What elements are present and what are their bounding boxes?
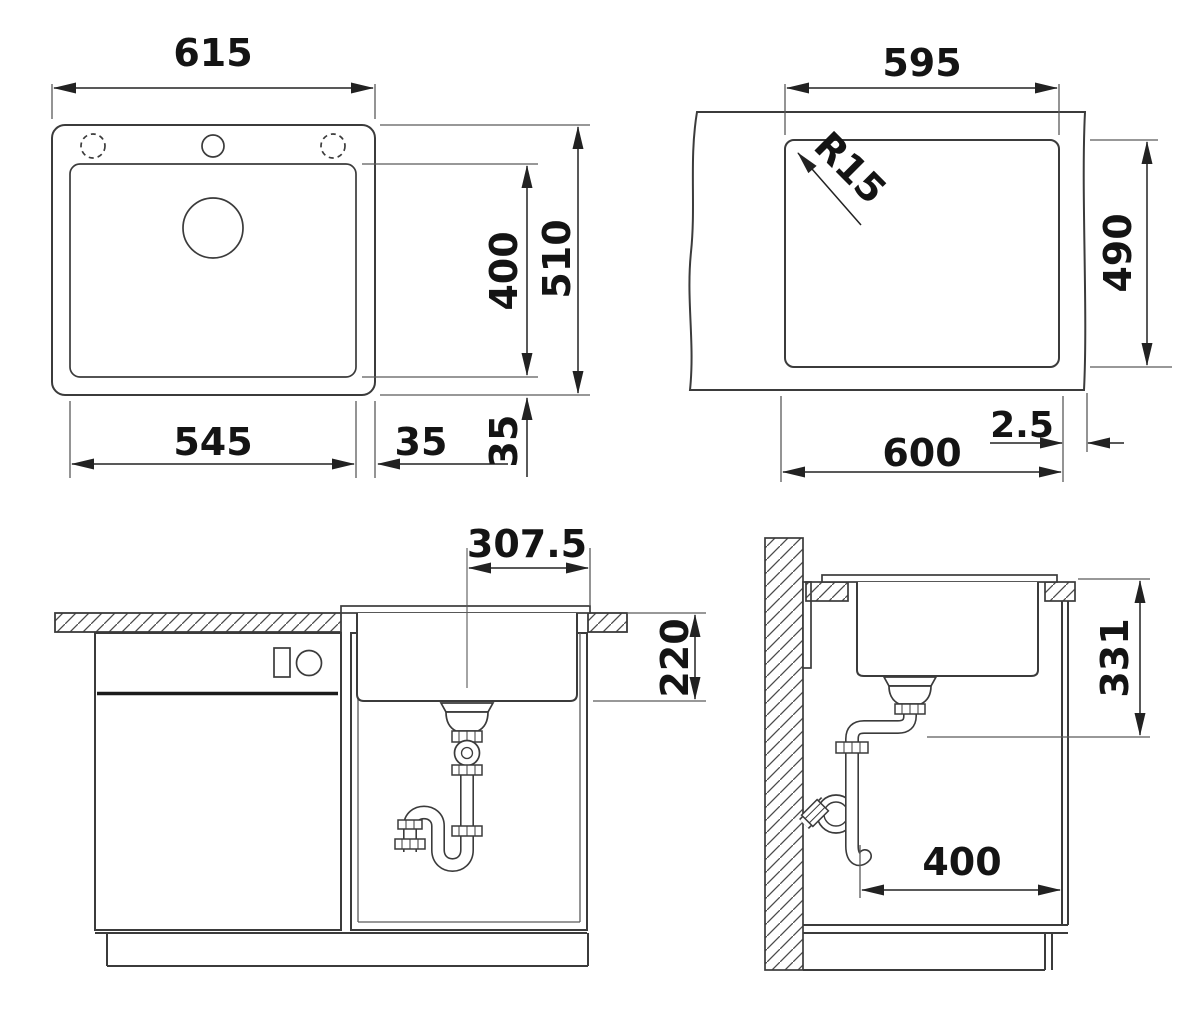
dim-edge-distance: 2.5 bbox=[990, 405, 1054, 446]
worktop-cutout-view: R15 595 490 600 2.5 bbox=[689, 41, 1172, 482]
trap-loop-inner bbox=[824, 802, 848, 826]
dim-overall-width: 615 bbox=[173, 31, 252, 75]
dim-bowl-inner-depth: 220 bbox=[653, 618, 697, 697]
tap-hole-center bbox=[202, 135, 224, 157]
sink-rim-flange-side bbox=[822, 575, 1057, 582]
drain-hole bbox=[183, 198, 243, 258]
technical-drawing-page: 615 400 510 545 35 35 R15 595 490 600 2.… bbox=[0, 0, 1200, 1026]
dim-overall-depth: 510 bbox=[535, 219, 579, 298]
sink-dimension-drawing: 615 400 510 545 35 35 R15 595 490 600 2.… bbox=[0, 0, 1200, 1026]
strainer-flange bbox=[441, 703, 493, 712]
strainer-cup bbox=[446, 712, 488, 731]
dim-outlet-height: 331 bbox=[1093, 618, 1137, 697]
worktop-section-right bbox=[588, 613, 627, 632]
control-icon-rect bbox=[274, 648, 290, 677]
outlet-collar bbox=[398, 820, 422, 829]
plinth bbox=[95, 933, 588, 966]
worktop-section-back bbox=[806, 582, 848, 601]
dim-bowl-depth: 400 bbox=[482, 231, 526, 310]
sink-bowl-side-section bbox=[857, 582, 1038, 676]
strainer-nut-side bbox=[895, 704, 925, 714]
worktop-section-left bbox=[55, 613, 341, 632]
union-nut-mid bbox=[452, 826, 482, 836]
dim-cabinet-width: 600 bbox=[882, 431, 961, 475]
dim-bowl-width: 545 bbox=[173, 420, 252, 464]
dim-right-rim: 35 bbox=[395, 420, 448, 464]
strainer-cup-side bbox=[889, 686, 931, 704]
strainer-flange-side bbox=[884, 677, 936, 686]
worktop-section-front bbox=[1045, 582, 1075, 601]
dim-outlet-wall-distance: 400 bbox=[922, 840, 1001, 884]
sink-rim-flange bbox=[341, 606, 590, 613]
dim-bottom-rim: 35 bbox=[482, 415, 526, 468]
union-nut-upper bbox=[452, 765, 482, 775]
dim-cutout-depth: 490 bbox=[1096, 213, 1140, 292]
union-nut-side bbox=[836, 742, 868, 753]
dim-cutout-width: 595 bbox=[882, 41, 961, 85]
left-cabinet bbox=[95, 633, 341, 930]
front-section-view: 307.5 220 bbox=[55, 522, 706, 966]
control-icon-knob bbox=[297, 651, 322, 676]
bowl-outline bbox=[70, 164, 356, 377]
elbow-joint bbox=[455, 741, 480, 766]
sink-top-view: 615 400 510 545 35 35 bbox=[52, 31, 590, 478]
dim-drain-offset: 307.5 bbox=[467, 522, 587, 566]
side-section-view: 331 400 bbox=[765, 538, 1150, 970]
union-nut-lower bbox=[395, 839, 425, 849]
wall-section bbox=[765, 538, 803, 970]
drain-trap-side bbox=[802, 677, 936, 859]
